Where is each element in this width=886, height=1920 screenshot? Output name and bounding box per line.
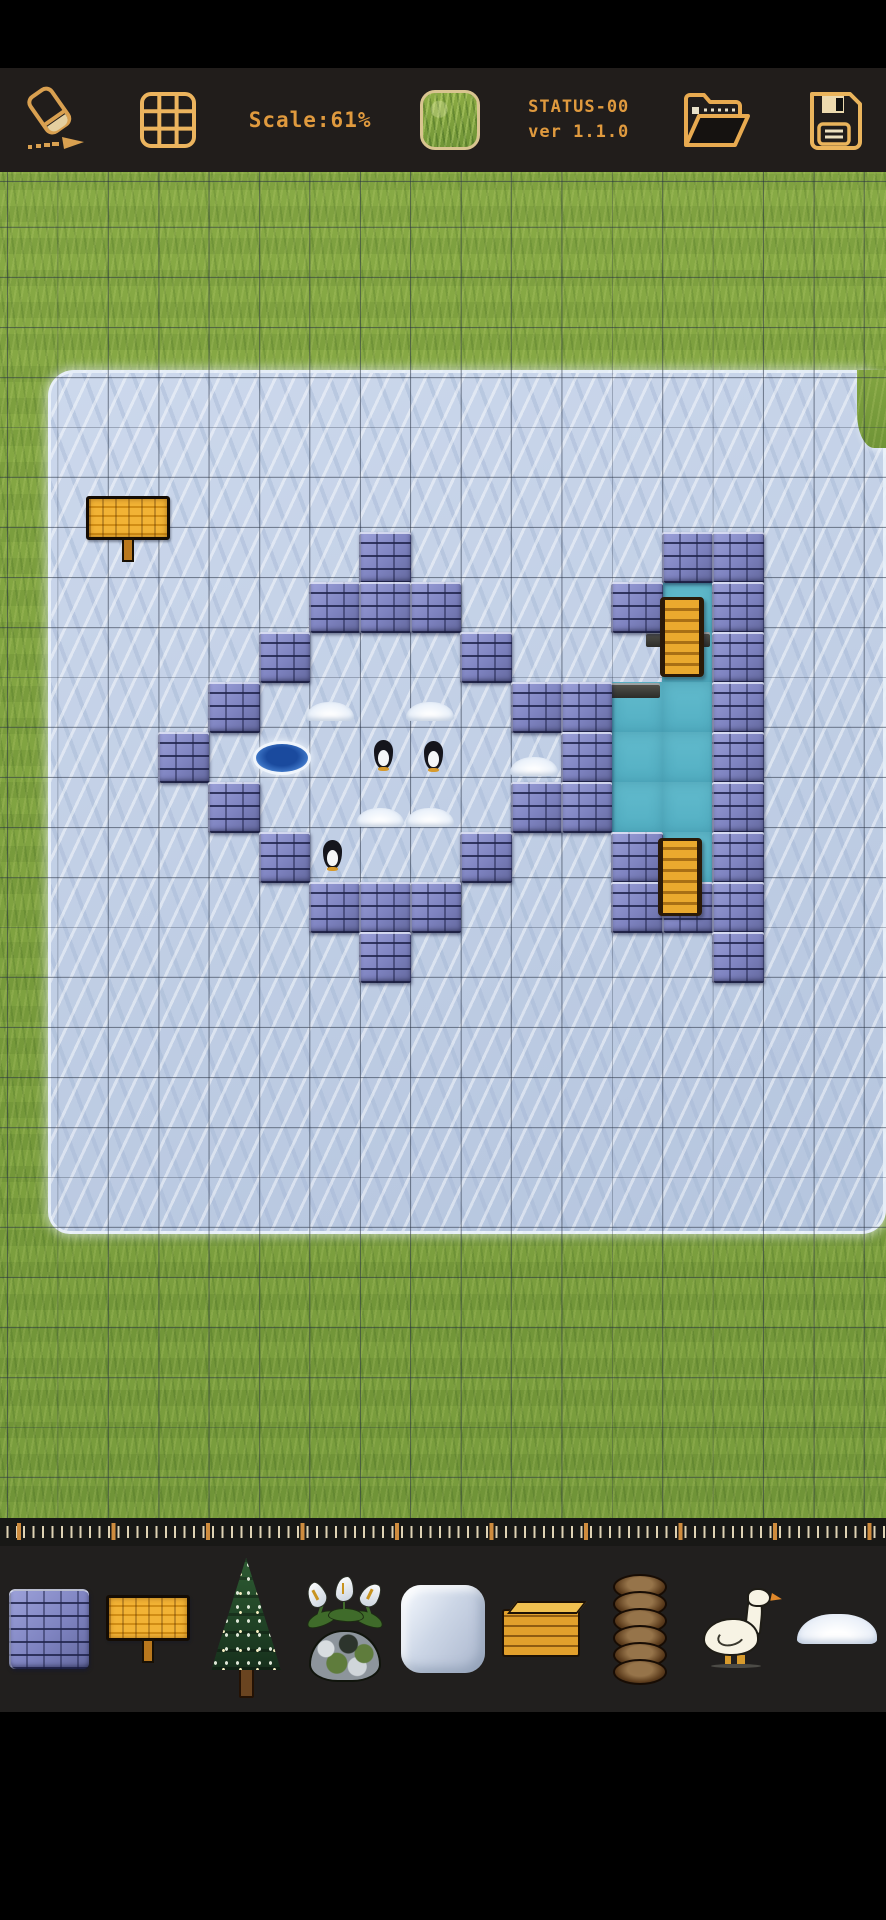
wooden-sign-sprite[interactable] — [86, 496, 174, 570]
brick-wall-tile[interactable] — [309, 882, 361, 933]
save-icon — [802, 88, 866, 152]
brick-wall-tile[interactable] — [309, 582, 361, 633]
app-status-text: STATUS-00 ver 1.1.0 — [528, 95, 629, 144]
brick-wall-tile[interactable] — [611, 582, 663, 633]
brick-wall-tile[interactable] — [561, 682, 613, 733]
status-bar — [0, 0, 886, 68]
wooden-ramp[interactable] — [660, 597, 704, 677]
wooden-ramp[interactable] — [658, 838, 702, 916]
palette-ruler — [0, 1518, 886, 1546]
bottom-bar — [0, 1712, 886, 1920]
brick-wall-tile[interactable] — [359, 582, 411, 633]
brick-wall-tile[interactable] — [611, 832, 663, 883]
scale-label: Scale:61% — [249, 108, 372, 132]
palette-item-coil-stack[interactable] — [591, 1546, 689, 1712]
brick-wall-tile[interactable] — [410, 582, 462, 633]
eraser-button[interactable] — [20, 81, 88, 159]
sign-post — [122, 538, 134, 562]
version-line: ver 1.1.0 — [528, 120, 629, 145]
eraser-icon — [20, 81, 88, 159]
brick-wall-tile[interactable] — [712, 782, 764, 833]
water-tile[interactable] — [612, 782, 663, 833]
open-folder-icon — [678, 85, 754, 155]
brick-wall-tile[interactable] — [359, 532, 411, 583]
ruler-major-ticks — [0, 1523, 886, 1540]
selected-tile-preview[interactable] — [420, 90, 480, 150]
brick-wall-tile[interactable] — [712, 582, 764, 633]
brick-wall-tile[interactable] — [712, 932, 764, 983]
brick-tile-art — [9, 1589, 89, 1669]
ice-hole[interactable] — [256, 744, 308, 772]
map-editor-screen: Scale:61% STATUS-00 ver 1.1.0 — [0, 0, 886, 1920]
water-tile[interactable] — [662, 782, 713, 833]
brick-wall-tile[interactable] — [158, 732, 210, 783]
brick-wall-tile[interactable] — [561, 732, 613, 783]
stone-ledge[interactable] — [610, 683, 660, 698]
save-button[interactable] — [802, 88, 866, 152]
grid-icon — [136, 88, 200, 152]
water-tile[interactable] — [662, 732, 713, 783]
map-canvas[interactable] — [0, 172, 886, 1518]
brick-wall-tile[interactable] — [460, 832, 512, 883]
brick-wall-tile[interactable] — [410, 882, 462, 933]
water-tile[interactable] — [662, 682, 713, 733]
goose-art — [701, 1586, 775, 1672]
palette-item-wooden-sign[interactable] — [98, 1546, 196, 1712]
sign-board — [86, 496, 170, 540]
flower-plant-art — [304, 1576, 386, 1682]
coil-stack-art — [613, 1574, 667, 1685]
brick-wall-tile[interactable] — [359, 882, 411, 933]
grass-corner-patch[interactable] — [857, 370, 886, 448]
palette-item-ice-tile[interactable] — [394, 1546, 492, 1712]
brick-wall-tile[interactable] — [208, 682, 260, 733]
pine-tree-art — [210, 1558, 282, 1700]
palette-item-snow-pile[interactable] — [788, 1546, 886, 1712]
brick-wall-tile[interactable] — [259, 832, 311, 883]
brick-wall-tile[interactable] — [662, 532, 714, 583]
palette-item-goose[interactable] — [689, 1546, 787, 1712]
brick-wall-tile[interactable] — [359, 932, 411, 983]
brick-wall-tile[interactable] — [712, 882, 764, 933]
snow-pile-art — [797, 1614, 877, 1644]
palette-item-brick-tile[interactable] — [0, 1546, 98, 1712]
brick-wall-tile[interactable] — [712, 682, 764, 733]
brick-wall-tile[interactable] — [561, 782, 613, 833]
brick-wall-tile[interactable] — [712, 832, 764, 883]
brick-wall-tile[interactable] — [712, 732, 764, 783]
palette-item-pine-tree[interactable] — [197, 1546, 295, 1712]
brick-wall-tile[interactable] — [712, 632, 764, 683]
toolbar: Scale:61% STATUS-00 ver 1.1.0 — [0, 68, 886, 172]
grid-toggle-button[interactable] — [136, 88, 200, 152]
status-line: STATUS-00 — [528, 95, 629, 120]
tile-palette — [0, 1546, 886, 1712]
plank-stack-art — [502, 1609, 580, 1657]
water-tile[interactable] — [612, 732, 663, 783]
brick-wall-tile[interactable] — [712, 532, 764, 583]
ice-tile-art — [401, 1585, 485, 1673]
palette-item-plank-stack[interactable] — [492, 1546, 590, 1712]
brick-wall-tile[interactable] — [611, 882, 663, 933]
brick-wall-tile[interactable] — [259, 632, 311, 683]
palette-item-flower-plant[interactable] — [295, 1546, 393, 1712]
wooden-sign-art — [106, 1595, 190, 1663]
brick-wall-tile[interactable] — [511, 682, 563, 733]
brick-wall-tile[interactable] — [208, 782, 260, 833]
brick-wall-tile[interactable] — [511, 782, 563, 833]
brick-wall-tile[interactable] — [460, 632, 512, 683]
open-file-button[interactable] — [678, 85, 754, 155]
